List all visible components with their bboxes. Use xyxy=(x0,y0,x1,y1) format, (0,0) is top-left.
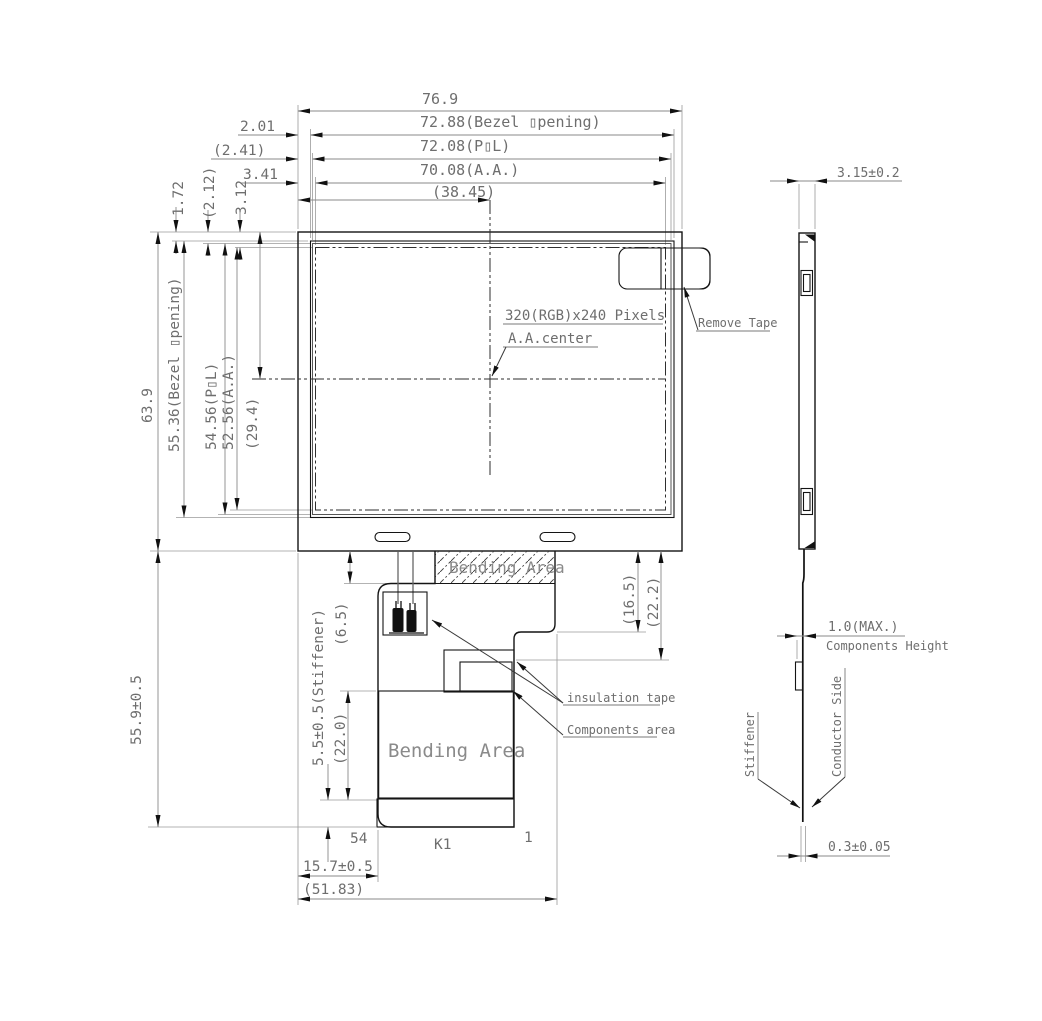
dim-top-pol: (2.12) xyxy=(202,167,218,219)
dim-top-bezel: 1.72 xyxy=(171,181,187,216)
dim-flex-right2: (22.2) xyxy=(646,577,662,629)
dim-height-aa: 52.56(A.A.) xyxy=(221,354,237,450)
mount-slot-left xyxy=(375,533,410,542)
dim-fpc-thickness: 0.3±0.05 xyxy=(828,840,891,855)
dim-height-pol: 54.56(P▯L) xyxy=(204,363,220,450)
dim-stiffener: 5.5±0.5(Stiffener) xyxy=(311,609,327,766)
dim-bend-height: (22.0) xyxy=(333,713,349,765)
pin-1-label: 1 xyxy=(524,830,533,846)
dim-flex-offset: 15.7±0.5 xyxy=(303,859,373,875)
bending-area-bottom-label: Bending Area xyxy=(388,740,525,762)
aa-center-label: A.A.center xyxy=(508,331,592,347)
fpc-flex xyxy=(377,551,555,827)
capacitors xyxy=(389,601,424,633)
mount-slot-right xyxy=(540,533,575,542)
bending-area-top-label: Bending Area xyxy=(449,558,565,577)
side-clip-bottom xyxy=(801,489,813,515)
remove-tape-label: Remove Tape xyxy=(698,316,777,330)
connector-k1-label: K1 xyxy=(434,837,451,853)
dim-width-total: 76.9 xyxy=(422,90,458,108)
remove-tape-tab xyxy=(619,248,710,289)
component-tape-patch xyxy=(383,592,427,635)
side-view xyxy=(796,184,816,862)
dim-width-pol: 72.08(P▯L) xyxy=(420,137,510,155)
side-clip-top xyxy=(801,271,813,296)
dim-center-y: (29.4) xyxy=(245,398,261,450)
dim-flex-gap: (6.5) xyxy=(334,602,350,646)
dimension-lines xyxy=(158,111,905,899)
side-component-box xyxy=(796,662,803,690)
dim-offset-pol: (2.41) xyxy=(213,143,265,159)
dim-height-bezel: 55.36(Bezel ▯pening) xyxy=(167,277,183,452)
conductor-side-label: Conductor Side xyxy=(830,676,844,777)
components-area-patch xyxy=(460,662,512,691)
dim-offset-bezel: 2.01 xyxy=(240,119,275,135)
pixels-label: 320(RGB)x240 Pixels xyxy=(505,308,665,324)
lcd-module-drawing: 76.9 72.88(Bezel ▯pening) 72.08(P▯L) 70.… xyxy=(0,0,1042,1021)
dim-flex-width: (51.83) xyxy=(303,882,364,898)
extension-lines xyxy=(148,105,682,905)
dim-flex-height: 55.9±0.5 xyxy=(129,675,145,745)
components-area-label: Components area xyxy=(567,723,675,737)
side-top-wedge xyxy=(805,235,815,242)
annotations: 76.9 72.88(Bezel ▯pening) 72.08(P▯L) 70.… xyxy=(129,90,949,898)
dim-top-aa: 3.12 xyxy=(234,180,250,215)
dim-height-total: 63.9 xyxy=(140,388,156,423)
dim-width-aa: 70.08(A.A.) xyxy=(420,161,519,179)
dim-flex-right1: (16.5) xyxy=(622,574,638,626)
dim-width-bezel: 72.88(Bezel ▯pening) xyxy=(420,113,601,131)
components-height-label: Components Height xyxy=(826,639,949,653)
dim-center-x: (38.45) xyxy=(432,183,495,201)
stiffener-strip xyxy=(377,799,514,827)
stiffener-label: Stiffener xyxy=(743,712,757,777)
insulation-tape-patch xyxy=(444,650,514,692)
dim-components-height: 1.0(MAX.) xyxy=(828,620,898,635)
side-bottom-wedge xyxy=(805,542,815,549)
insulation-tape-label: insulation tape xyxy=(567,691,675,705)
pin-54-label: 54 xyxy=(350,831,368,847)
dim-thickness: 3.15±0.2 xyxy=(837,166,900,181)
